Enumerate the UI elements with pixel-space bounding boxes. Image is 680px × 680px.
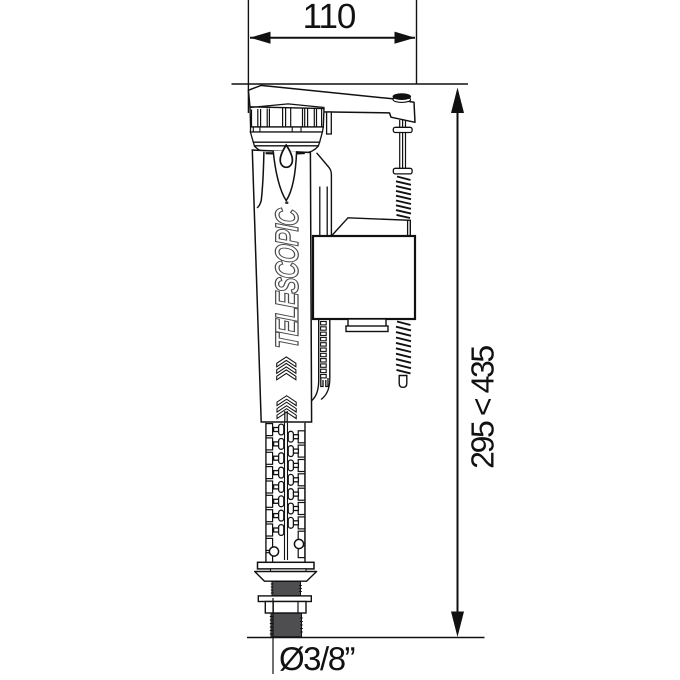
svg-text:Ø3/8”: Ø3/8” (279, 640, 355, 677)
svg-text:110: 110 (303, 0, 356, 36)
svg-text:295 < 435: 295 < 435 (465, 346, 501, 469)
svg-text:TELESCOPIC: TELESCOPIC (269, 207, 305, 350)
